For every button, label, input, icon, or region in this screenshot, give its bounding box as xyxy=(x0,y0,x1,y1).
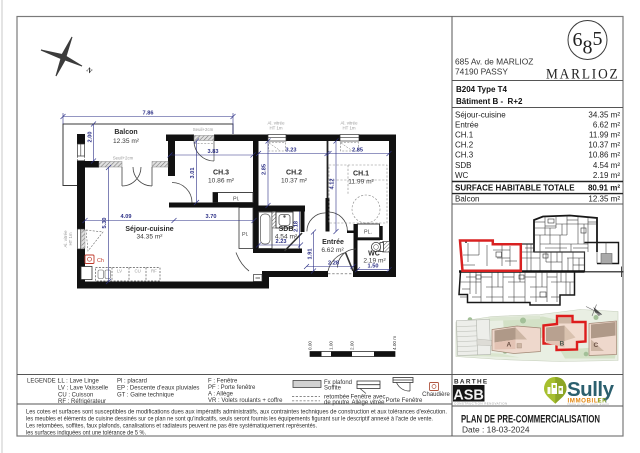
svg-text:Porte Fenêtre: Porte Fenêtre xyxy=(386,398,423,404)
svg-text:HT 1m: HT 1m xyxy=(269,126,282,131)
svg-text:CH.3: CH.3 xyxy=(213,170,229,177)
svg-text:Les retombées, soffites, faux: Les retombées, soffites, faux plafonds, … xyxy=(26,423,317,430)
svg-text:Seuil+2cm: Seuil+2cm xyxy=(193,127,214,132)
svg-text:A: A xyxy=(507,342,512,349)
svg-text:Bâtiment B - R+2: Bâtiment B - R+2 xyxy=(456,97,523,106)
svg-text:11.99 m²: 11.99 m² xyxy=(348,178,374,185)
svg-text:4.54 m²: 4.54 m² xyxy=(593,161,620,170)
svg-text:Date : 18-03-2024: Date : 18-03-2024 xyxy=(462,425,530,435)
svg-text:1.00: 1.00 xyxy=(329,341,334,350)
svg-text:CH.1: CH.1 xyxy=(353,171,369,178)
svg-text:Notre projet : votre avenir: Notre projet : votre avenir xyxy=(568,402,610,406)
svg-text:C: C xyxy=(594,342,599,349)
svg-text:Chaudière: Chaudière xyxy=(422,392,450,398)
svg-text:LV : Lave Vaisselle: LV : Lave Vaisselle xyxy=(58,386,109,392)
svg-text:N: N xyxy=(85,66,94,75)
svg-text:B: B xyxy=(560,341,565,348)
svg-text:les surfaces indiquées ont une: les surfaces indiquées ont une tolérance… xyxy=(26,430,146,437)
svg-text:10.86 m²: 10.86 m² xyxy=(588,151,620,160)
svg-text:2.85: 2.85 xyxy=(262,164,268,175)
svg-text:7.86: 7.86 xyxy=(143,111,154,117)
svg-text:Entrée: Entrée xyxy=(322,239,344,246)
svg-text:12.35 m²: 12.35 m² xyxy=(588,194,620,203)
svg-text:F : Fenêtre: F : Fenêtre xyxy=(208,379,238,385)
svg-text:2.00: 2.00 xyxy=(350,341,355,350)
svg-text:Allège vitrée: Allège vitrée xyxy=(351,400,385,406)
svg-text:Séjour-cuisine: Séjour-cuisine xyxy=(125,226,173,233)
svg-text:CONSTRUCTION RENOVATION: CONSTRUCTION RENOVATION xyxy=(454,401,508,405)
svg-text:8: 8 xyxy=(583,37,593,59)
svg-text:3.23: 3.23 xyxy=(286,148,297,154)
svg-text:12.35 m²: 12.35 m² xyxy=(113,138,140,145)
svg-text:10.37 m²: 10.37 m² xyxy=(588,141,620,150)
svg-text:Soffite: Soffite xyxy=(324,386,342,392)
svg-text:LEGENDE :: LEGENDE : xyxy=(27,379,59,385)
svg-text:SDB: SDB xyxy=(279,226,294,233)
svg-text:Pl.: Pl. xyxy=(242,232,248,238)
svg-text:80.91 m²: 80.91 m² xyxy=(588,183,620,192)
svg-text:74190 PASSY: 74190 PASSY xyxy=(455,67,508,77)
svg-text:CH.3: CH.3 xyxy=(455,151,474,160)
svg-text:10.86 m²: 10.86 m² xyxy=(208,177,235,184)
svg-text:2.28: 2.28 xyxy=(328,261,339,267)
svg-text:HT 1m: HT 1m xyxy=(342,126,355,131)
svg-text:2.00: 2.00 xyxy=(88,132,94,143)
svg-text:PL.: PL. xyxy=(364,229,372,235)
svg-text:LV: LV xyxy=(117,269,122,274)
svg-text:GT : Gaine technique: GT : Gaine technique xyxy=(117,393,175,399)
svg-text:EP : Descente d'eaux pluviales: EP : Descente d'eaux pluviales xyxy=(117,386,199,392)
svg-text:2.85: 2.85 xyxy=(352,148,363,154)
svg-text:1.91: 1.91 xyxy=(308,249,314,260)
svg-text:2.18: 2.18 xyxy=(294,221,300,232)
svg-text:6.62 m²: 6.62 m² xyxy=(321,247,344,254)
svg-text:Pl : placard: Pl : placard xyxy=(117,379,147,385)
svg-text:0.00: 0.00 xyxy=(308,341,313,350)
svg-text:Pl.: Pl. xyxy=(233,197,239,203)
svg-text:2.19 m²: 2.19 m² xyxy=(363,257,386,264)
svg-text:CH.2: CH.2 xyxy=(455,141,474,150)
svg-text:5.30: 5.30 xyxy=(102,218,108,229)
svg-text:BARTHE: BARTHE xyxy=(454,379,488,386)
svg-text:6.62 m²: 6.62 m² xyxy=(593,120,620,129)
svg-text:4.12: 4.12 xyxy=(330,179,336,190)
svg-text:34.35 m²: 34.35 m² xyxy=(588,110,620,119)
svg-text:Entrée: Entrée xyxy=(455,120,479,129)
svg-text:WC: WC xyxy=(455,171,469,180)
svg-text:RF: RF xyxy=(151,269,157,274)
svg-text:Ch: Ch xyxy=(97,258,104,264)
svg-text:les meubles et éléments de cui: les meubles et éléments de cuisine dessi… xyxy=(26,416,433,423)
svg-text:Balcon: Balcon xyxy=(114,129,137,136)
svg-text:WC: WC xyxy=(368,250,380,257)
svg-text:Les cotes et surfaces sont sus: Les cotes et surfaces sont susceptibles … xyxy=(26,409,447,416)
svg-text:3.70: 3.70 xyxy=(206,214,217,220)
svg-text:CU : Cuisson: CU : Cuisson xyxy=(58,393,93,399)
svg-text:A : Allège: A : Allège xyxy=(208,392,234,398)
svg-text:de poutre: de poutre xyxy=(324,400,350,406)
svg-text:4.54 m²: 4.54 m² xyxy=(275,233,298,240)
svg-text:11.99 m²: 11.99 m² xyxy=(589,131,620,140)
svg-text:5: 5 xyxy=(593,28,603,50)
svg-text:RF : Réfrigérateur: RF : Réfrigérateur xyxy=(58,399,106,405)
svg-text:Balcon: Balcon xyxy=(455,194,479,203)
svg-text:Séjour-cuisine: Séjour-cuisine xyxy=(455,110,506,119)
svg-text:6: 6 xyxy=(573,29,583,51)
svg-text:3.83: 3.83 xyxy=(208,149,219,155)
svg-text:PF : Porte fenêtre: PF : Porte fenêtre xyxy=(208,385,256,391)
svg-text:HT 1m: HT 1m xyxy=(68,232,73,245)
svg-text:CU: CU xyxy=(135,269,141,274)
svg-text:CH.1: CH.1 xyxy=(455,131,474,140)
svg-text:10.37 m²: 10.37 m² xyxy=(281,177,308,184)
svg-text:685 Av. de MARLIOZ: 685 Av. de MARLIOZ xyxy=(455,57,533,67)
svg-text:2.19 m²: 2.19 m² xyxy=(593,171,620,180)
svg-text:Seuil+2cm: Seuil+2cm xyxy=(113,156,134,161)
svg-text:VR : Volets roulants + coffre: VR : Volets roulants + coffre xyxy=(208,398,283,404)
svg-text:CH.2: CH.2 xyxy=(286,170,302,177)
svg-text:B204 Type T4: B204 Type T4 xyxy=(456,85,508,94)
svg-text:4.09: 4.09 xyxy=(121,214,132,220)
svg-text:LL : Lave Linge: LL : Lave Linge xyxy=(58,379,99,385)
svg-text:SURFACE HABITABLE TOTALE: SURFACE HABITABLE TOTALE xyxy=(455,183,575,192)
svg-text:SDB: SDB xyxy=(455,161,471,170)
svg-text:34.35 m²: 34.35 m² xyxy=(136,234,163,241)
svg-text:4.00 m: 4.00 m xyxy=(392,336,397,350)
svg-text:3.01: 3.01 xyxy=(190,168,196,179)
